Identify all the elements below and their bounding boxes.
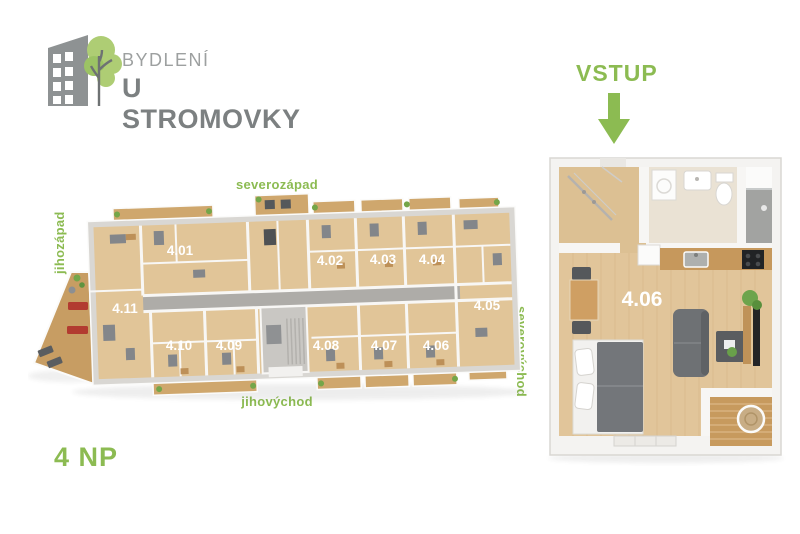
apartment-label-4.11[interactable]: 4.11 (112, 301, 138, 316)
brand-name-line2: U STROMOVKY (122, 73, 301, 135)
plant-icon (79, 282, 85, 288)
building-body (87, 187, 522, 398)
sofa (673, 309, 709, 377)
building-shadow (72, 384, 528, 400)
shower-head (761, 205, 767, 211)
apartment-label-4.06[interactable]: 4.06 (423, 338, 450, 353)
coffee-table (716, 331, 746, 362)
building-tree-icon (44, 26, 122, 110)
detail-apartment-label: 4.06 (622, 288, 663, 311)
plant-icon (727, 347, 737, 357)
deck-chair (265, 200, 275, 209)
apartment-label-4.07[interactable]: 4.07 (371, 338, 397, 353)
plant-icon (74, 275, 81, 282)
tv (753, 304, 760, 366)
apartment-label-4.09[interactable]: 4.09 (216, 338, 242, 353)
lounger-red (67, 326, 88, 334)
apartment-label-4.04[interactable]: 4.04 (419, 252, 446, 267)
floorplan-overview: 4.014.024.034.044.054.064.074.084.094.10… (28, 168, 544, 410)
cooktop (742, 250, 764, 269)
entry-hall (559, 167, 639, 243)
window (614, 436, 676, 446)
apartment-label-4.01[interactable]: 4.01 (167, 243, 194, 258)
stair-core (260, 306, 308, 378)
apartment-label-4.10[interactable]: 4.10 (166, 338, 192, 353)
lounger-red (68, 302, 88, 310)
brand-logo: BYDLENÍ U STROMOVKY (44, 26, 122, 110)
balcony (701, 388, 772, 446)
entrance-arrow-icon (596, 93, 632, 150)
bed (573, 340, 643, 434)
terrace (34, 272, 94, 384)
page: BYDLENÍ U STROMOVKY VSTUP severozápad ji… (0, 0, 800, 534)
building-entrance (268, 366, 302, 377)
chair (572, 267, 591, 280)
bathroom (639, 167, 737, 243)
terrace-table (69, 287, 76, 294)
pillow (574, 382, 594, 410)
chair (572, 321, 591, 334)
brand-name-line1: BYDLENÍ (122, 50, 301, 71)
tv-bench (743, 306, 751, 364)
kitchen-cabinet (638, 245, 660, 265)
elevator (266, 325, 282, 345)
floor-label: 4 NP (54, 442, 118, 473)
toilet-tank (716, 173, 733, 182)
hanging-chair (738, 406, 764, 432)
pillow (574, 348, 594, 376)
shower (737, 167, 772, 243)
apartment-label-4.05[interactable]: 4.05 (474, 298, 501, 313)
washing-machine (652, 170, 676, 200)
entry-door (600, 158, 626, 167)
toilet (716, 183, 732, 205)
apartment-label-4.02[interactable]: 4.02 (317, 253, 343, 268)
deck-chair (281, 199, 291, 208)
entrance-label: VSTUP (576, 60, 652, 87)
desk (570, 280, 598, 320)
apartment-label-4.03[interactable]: 4.03 (370, 252, 397, 267)
apartment-detail-plan: 4.06 (544, 146, 800, 466)
apartment-label-4.08[interactable]: 4.08 (313, 338, 340, 353)
